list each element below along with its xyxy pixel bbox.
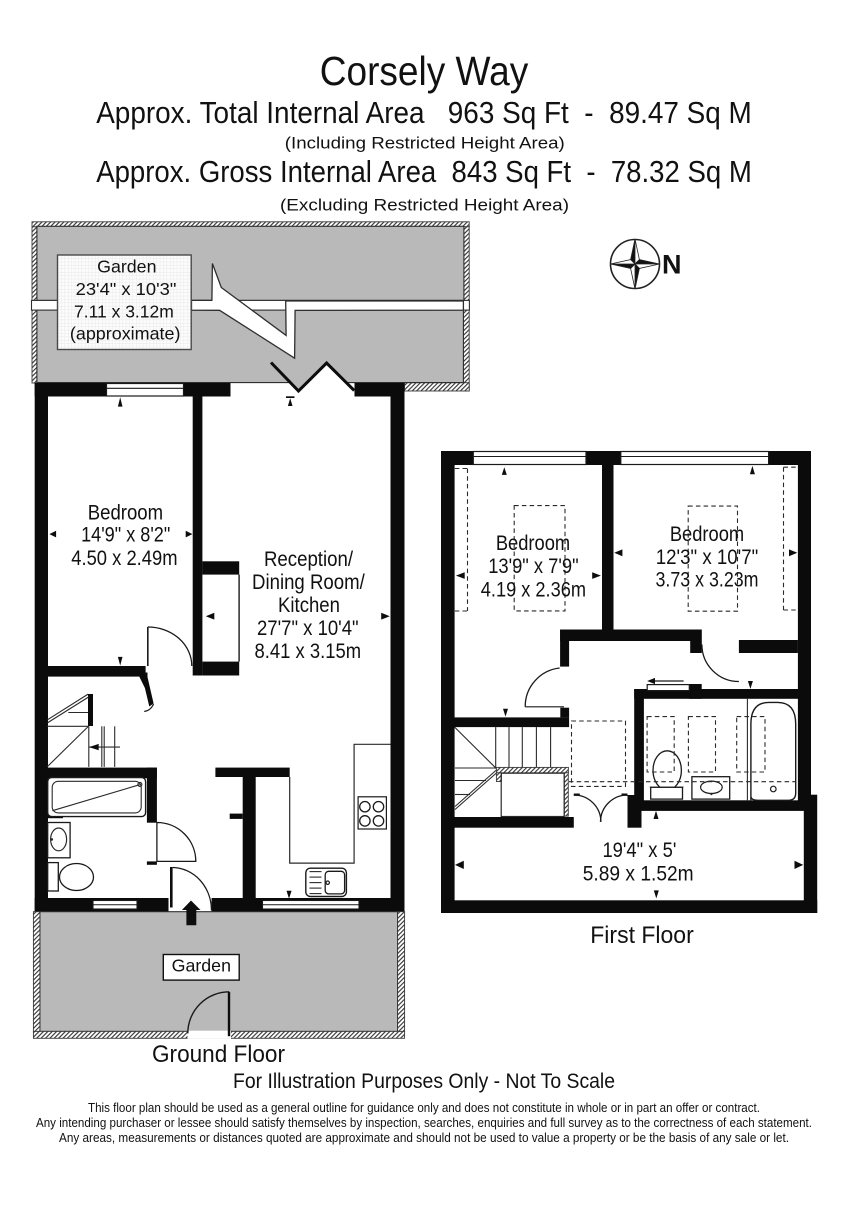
svg-text:19'4" x 5': 19'4" x 5': [602, 839, 676, 862]
svg-text:4.50 x 2.49m: 4.50 x 2.49m: [71, 547, 177, 570]
svg-text:14'9" x 8'2": 14'9" x 8'2": [81, 524, 170, 547]
svg-text:Garden: Garden: [172, 956, 231, 976]
svg-text:8.41 x 3.15m: 8.41 x 3.15m: [255, 640, 362, 663]
svg-text:Ground Floor: Ground Floor: [152, 1041, 285, 1068]
svg-text:12'3" x 10'7": 12'3" x 10'7": [656, 546, 759, 569]
svg-text:13'9" x 7'9": 13'9" x 7'9": [488, 555, 578, 578]
svg-text:Garden: Garden: [97, 257, 156, 277]
svg-text:Approx. Total Internal Area: Approx. Total Internal Area 963 Sq Ft - …: [96, 95, 752, 130]
svg-text:23'4" x 10'3": 23'4" x 10'3": [76, 279, 177, 299]
svg-text:Bedroom: Bedroom: [496, 532, 570, 555]
svg-text:Corsely Way: Corsely Way: [320, 48, 529, 94]
svg-text:Approx. Gross Internal Area 8: Approx. Gross Internal Area 843 Sq Ft - …: [96, 154, 752, 189]
svg-text:N: N: [662, 250, 682, 280]
svg-text:(Including Restricted Height A: (Including Restricted Height Area): [285, 134, 565, 153]
svg-text:First Floor: First Floor: [590, 922, 694, 949]
svg-text:7.11 x 3.12m: 7.11 x 3.12m: [74, 301, 174, 321]
svg-text:27'7" x 10'4": 27'7" x 10'4": [257, 617, 359, 640]
svg-text:(approximate): (approximate): [70, 324, 181, 344]
svg-text:Any intending purchaser or les: Any intending purchaser or lessee should…: [36, 1116, 812, 1130]
svg-text:For Illustration Purposes Only: For Illustration Purposes Only - Not To …: [233, 1070, 615, 1093]
svg-text:Kitchen: Kitchen: [278, 594, 340, 617]
svg-text:Reception/: Reception/: [264, 548, 353, 571]
svg-text:Dining Room/: Dining Room/: [252, 571, 365, 594]
svg-text:Bedroom: Bedroom: [88, 501, 163, 524]
svg-text:5.89 x 1.52m: 5.89 x 1.52m: [583, 863, 694, 886]
svg-text:3.73 x 3.23m: 3.73 x 3.23m: [656, 569, 759, 592]
svg-text:4.19 x 2.36m: 4.19 x 2.36m: [481, 579, 586, 602]
svg-text:Bedroom: Bedroom: [670, 523, 744, 546]
svg-text:This floor plan should be used: This floor plan should be used as a gene…: [88, 1101, 760, 1115]
svg-text:Any areas, measurements or dis: Any areas, measurements or distances quo…: [59, 1131, 789, 1145]
svg-text:(Excluding Restricted Height A: (Excluding Restricted Height Area): [280, 196, 569, 215]
